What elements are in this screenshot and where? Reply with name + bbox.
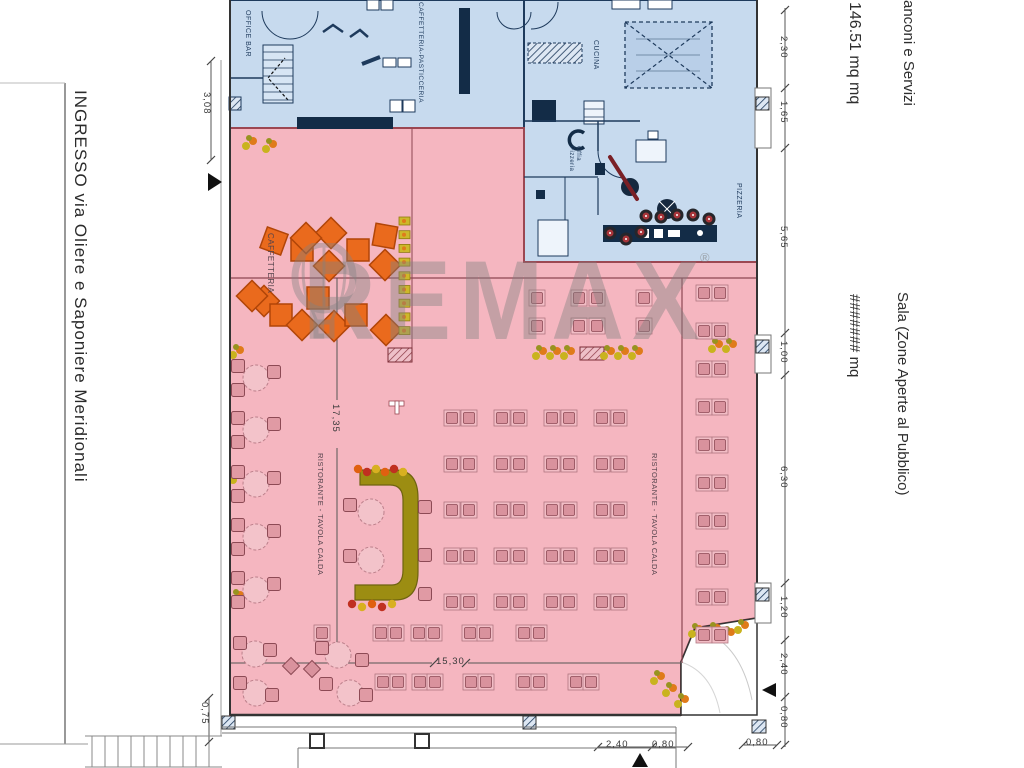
round-table <box>358 547 384 573</box>
dining-chair <box>447 551 458 562</box>
dim-right-3: 5,65 <box>778 226 789 249</box>
dining-chair <box>614 413 625 424</box>
zone-services-area-label: 146.51 mq mq <box>845 2 863 104</box>
dim-bottom-b: 0,80 <box>652 739 675 750</box>
dining-chair <box>519 628 530 639</box>
dining-chair <box>414 628 425 639</box>
entrance-arrow-right <box>762 683 776 697</box>
dining-chair <box>376 628 387 639</box>
dining-chair <box>447 459 458 470</box>
chair <box>264 644 277 657</box>
dining-chair <box>378 677 389 688</box>
dining-chair <box>464 459 475 470</box>
dining-chair <box>547 459 558 470</box>
dim-bottom-a: 2,40 <box>606 739 629 750</box>
dining-chair <box>497 505 508 516</box>
round-table <box>243 417 269 443</box>
ristorante-right-label: RISTORANTE - TAVOLA CALDA <box>650 453 659 575</box>
dining-chair <box>715 630 726 641</box>
cucina-label: CUCINA <box>592 40 599 70</box>
dining-chair <box>699 516 710 527</box>
chair <box>232 436 245 449</box>
chair <box>232 466 245 479</box>
dining-chair <box>497 413 508 424</box>
chair <box>232 384 245 397</box>
dining-chair <box>534 677 545 688</box>
chair <box>232 596 245 609</box>
dining-chair <box>514 551 525 562</box>
dining-chair <box>699 402 710 413</box>
floorplan-drawing <box>0 0 1024 768</box>
dining-chair <box>614 459 625 470</box>
dining-chair <box>480 628 491 639</box>
dining-chair <box>466 677 477 688</box>
round-table <box>243 524 269 550</box>
dining-chair <box>571 677 582 688</box>
dining-chair <box>597 459 608 470</box>
ristorante-left-label: RISTORANTE - TAVOLA CALDA <box>316 453 325 575</box>
dining-chair <box>317 628 328 639</box>
dining-chair <box>699 630 710 641</box>
dining-chair <box>699 478 710 489</box>
off-pizzeria-label: Offia Pizzeria <box>566 146 581 186</box>
dining-chair <box>597 413 608 424</box>
dining-chair <box>586 677 597 688</box>
dining-chair <box>447 597 458 608</box>
kitchen-oven <box>532 100 556 122</box>
chair <box>344 550 357 563</box>
dining-chair <box>497 551 508 562</box>
round-table <box>243 577 269 603</box>
round-table <box>358 499 384 525</box>
dining-chair <box>564 459 575 470</box>
round-table <box>243 471 269 497</box>
dining-chair <box>614 597 625 608</box>
dining-chair <box>429 628 440 639</box>
chair <box>266 689 279 702</box>
dim-right-6: 1,20 <box>778 596 789 619</box>
dining-chair <box>393 677 404 688</box>
chair <box>232 360 245 373</box>
dining-chair <box>597 551 608 562</box>
street-entrance-label: INGRESSO via Oliere e Saponiere Meridion… <box>70 90 90 483</box>
dining-chair <box>497 597 508 608</box>
dining-chair <box>547 505 558 516</box>
dining-chair <box>597 597 608 608</box>
chair <box>316 642 329 655</box>
dim-hall-width: 15,30 <box>436 656 465 667</box>
dim-right-4: 1,00 <box>778 341 789 364</box>
dining-chair <box>699 440 710 451</box>
dim-right-1: 2,30 <box>778 36 789 59</box>
dining-chair <box>715 364 726 375</box>
dining-chair <box>564 505 575 516</box>
chair <box>344 499 357 512</box>
dining-chair <box>519 677 530 688</box>
zone-hall-name-label: Sala (Zone Aperte al Pubblico) <box>894 292 911 495</box>
dining-chair <box>715 288 726 299</box>
dim-right-2: 1,65 <box>778 101 789 124</box>
dining-chair <box>391 628 402 639</box>
dim-right-5: 6,30 <box>778 466 789 489</box>
caffetteria-pasticceria-label: CAFFETTERIA-PASTICCERIA <box>417 2 424 103</box>
dim-right-8: 0,80 <box>778 706 789 729</box>
dining-chair <box>564 597 575 608</box>
exterior-walkway <box>85 727 676 768</box>
dining-chair <box>614 505 625 516</box>
dining-chair <box>597 505 608 516</box>
dining-chair <box>547 597 558 608</box>
dining-chair <box>715 478 726 489</box>
chair <box>268 418 281 431</box>
dining-chair <box>715 554 726 565</box>
dining-chair <box>715 440 726 451</box>
dining-chair <box>547 551 558 562</box>
dining-chair <box>699 592 710 603</box>
dining-chair <box>564 413 575 424</box>
dining-chair <box>614 551 625 562</box>
dining-chair <box>430 677 441 688</box>
chair <box>360 689 373 702</box>
zone-services-name-label: anconi e Servizi <box>900 0 917 106</box>
dim-right-7: 2,40 <box>778 653 789 676</box>
chair <box>232 519 245 532</box>
exterior-stair-treads <box>92 736 209 767</box>
cafe-staircase <box>263 45 293 103</box>
chair <box>268 525 281 538</box>
round-table <box>243 365 269 391</box>
dining-chair <box>497 459 508 470</box>
dining-chair <box>715 326 726 337</box>
chair <box>232 543 245 556</box>
column-post <box>415 734 429 748</box>
chair <box>419 549 432 562</box>
dining-chair <box>514 459 525 470</box>
chair <box>356 654 369 667</box>
chair <box>234 637 247 650</box>
dim-bottom-right: 0,80 <box>746 737 769 748</box>
dining-chair <box>464 505 475 516</box>
entrance-arrow-left <box>208 173 222 191</box>
entrance-arrow-bottom <box>632 753 648 767</box>
dining-chair <box>699 364 710 375</box>
bar-counter <box>459 8 470 94</box>
dining-chair <box>465 628 476 639</box>
dining-chair <box>547 413 558 424</box>
dining-chair <box>464 413 475 424</box>
chair <box>232 490 245 503</box>
chair <box>419 588 432 601</box>
dining-chair <box>514 413 525 424</box>
dining-chair <box>514 505 525 516</box>
chair <box>320 678 333 691</box>
chair <box>232 412 245 425</box>
caffetteria-label: CAFFETTERIA <box>266 233 275 293</box>
dim-left-bottom: 0,75 <box>199 702 210 725</box>
dining-chair <box>715 592 726 603</box>
dining-chair <box>415 677 426 688</box>
dim-left-top: 3,08 <box>201 92 212 115</box>
dining-chair <box>699 554 710 565</box>
floorplan-canvas: INGRESSO via Oliere e Saponiere Meridion… <box>0 0 1024 768</box>
chair <box>268 578 281 591</box>
dining-chair <box>464 597 475 608</box>
chair <box>232 572 245 585</box>
remax-watermark: REMAX <box>303 236 708 365</box>
dining-chair <box>715 516 726 527</box>
dim-hall-height: 17,35 <box>330 404 341 433</box>
chair <box>268 366 281 379</box>
dining-chair <box>447 505 458 516</box>
pizzeria-label: PIZZERIA <box>735 183 742 219</box>
dining-chair <box>464 551 475 562</box>
dining-chair <box>447 413 458 424</box>
chair <box>419 501 432 514</box>
chair <box>234 677 247 690</box>
service-counter <box>297 117 393 129</box>
chair <box>268 472 281 485</box>
dining-chair <box>564 551 575 562</box>
column-post <box>310 734 324 748</box>
office-bar-label: OFFICE BAR <box>244 10 251 57</box>
dining-chair <box>715 402 726 413</box>
dining-chair <box>514 597 525 608</box>
dining-chair <box>534 628 545 639</box>
remax-registered-mark: ® <box>700 250 710 265</box>
dining-chair <box>481 677 492 688</box>
zone-hall-area-label: ####### mq <box>846 294 863 377</box>
